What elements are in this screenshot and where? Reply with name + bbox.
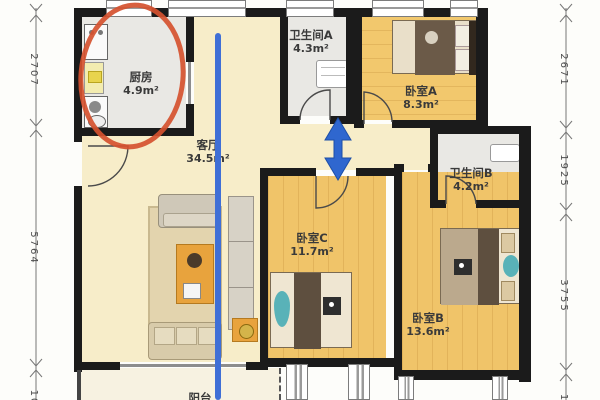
coffee-table — [176, 244, 214, 304]
dim-left-5764: 5764 — [28, 231, 39, 264]
wall — [74, 128, 194, 136]
bathroom-a-vanity — [316, 60, 348, 88]
wall — [246, 362, 268, 370]
window — [106, 0, 152, 17]
wall — [260, 168, 268, 366]
floor-plan: 厨房4.9m² 客厅34.5m² 卫生间A4.3m² 卧室A8.3m² 卫生间B… — [0, 0, 600, 400]
window — [348, 364, 370, 400]
balcony-sliding-door — [120, 364, 246, 367]
room-label-bedroom-b: 卧室B13.6m² — [406, 311, 449, 339]
wall — [280, 8, 288, 124]
dim-right-2671: 2671 — [558, 53, 569, 86]
sofa-top — [158, 194, 220, 228]
wall — [438, 200, 446, 208]
wall — [330, 116, 346, 124]
wall — [476, 8, 488, 130]
wall — [354, 8, 362, 128]
sofa-bottom — [148, 322, 222, 360]
balcony-floor — [80, 368, 280, 400]
wall — [74, 8, 82, 142]
tv-cabinet — [228, 196, 254, 330]
bed-c — [270, 272, 352, 348]
wall — [476, 200, 531, 208]
dim-left-2707: 2707 — [28, 53, 39, 86]
room-label-bathroom-b: 卫生间B4.2m² — [449, 166, 492, 194]
wall — [519, 126, 531, 382]
wall — [346, 8, 354, 124]
window — [286, 364, 308, 400]
kitchen-sliding-door — [188, 62, 191, 104]
window — [398, 376, 414, 400]
balcony-divider — [279, 368, 281, 400]
bed-a — [392, 20, 478, 74]
dim-right-3755: 3755 — [558, 279, 569, 312]
room-label-balcony: 阳台 — [189, 391, 212, 400]
room-label-bedroom-a: 卧室A8.3m² — [403, 84, 439, 112]
bathroom-b-vanity — [490, 144, 520, 162]
side-table — [232, 318, 258, 342]
hallway-floor — [260, 124, 434, 170]
dim-right-1925: 1925 — [558, 154, 569, 187]
wall — [430, 126, 531, 134]
dim-right-partial: 1 — [558, 394, 569, 400]
wall — [288, 116, 300, 124]
wall — [356, 168, 402, 176]
wall — [394, 370, 531, 380]
wall — [74, 362, 120, 370]
room-label-bathroom-a: 卫生间A4.3m² — [289, 28, 332, 56]
window — [286, 0, 334, 17]
window — [450, 0, 478, 17]
wall — [428, 164, 438, 172]
kitchen-stove — [84, 96, 108, 128]
wall — [394, 164, 402, 372]
window — [372, 0, 424, 17]
kitchen-counter — [84, 62, 104, 94]
window — [168, 0, 246, 17]
dim-left-partial: 10 — [28, 390, 39, 400]
wall — [74, 186, 82, 372]
wall — [260, 358, 402, 367]
window — [492, 376, 508, 400]
room-label-living: 客厅34.5m² — [186, 138, 229, 166]
balcony-side-wall — [77, 370, 81, 400]
wall — [260, 168, 316, 176]
room-label-kitchen: 厨房4.9m² — [123, 70, 159, 98]
bed-b — [440, 228, 523, 304]
wall — [354, 120, 364, 128]
room-dining-floor — [194, 16, 280, 136]
fridge — [84, 24, 108, 60]
room-label-bedroom-c: 卧室C11.7m² — [290, 231, 333, 259]
